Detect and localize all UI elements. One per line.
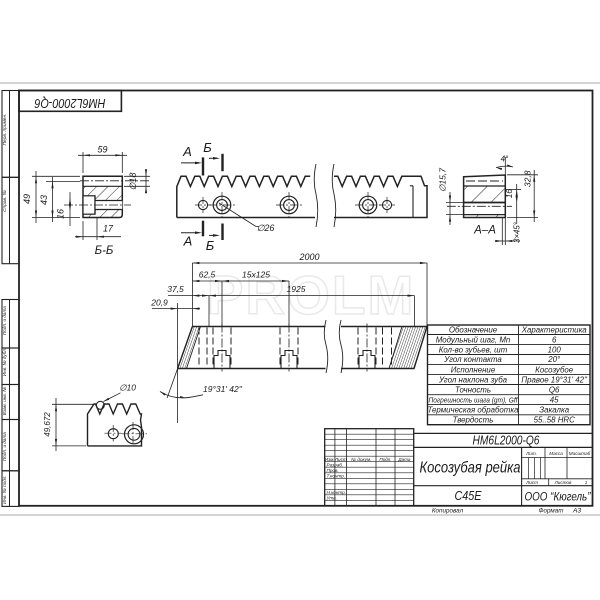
svg-text:∅18: ∅18 (128, 173, 138, 191)
svg-text:Погрешность шага (gm), Gff: Погрешность шага (gm), Gff (429, 395, 519, 404)
svg-text:Масштаб: Масштаб (569, 451, 591, 456)
svg-text:Листов: Листов (554, 480, 572, 485)
svg-text:55..58 HRC: 55..58 HRC (534, 416, 576, 425)
svg-text:Угол наклона зуба: Угол наклона зуба (438, 375, 508, 384)
svg-text:Кол-во зубьев, шт: Кол-во зубьев, шт (439, 345, 508, 354)
svg-text:Косозубая рейка: Косозубая рейка (420, 460, 521, 477)
svg-text:49: 49 (22, 194, 32, 204)
svg-text:37,5: 37,5 (167, 284, 184, 294)
svg-text:Твердость: Твердость (453, 416, 494, 425)
svg-text:Н.контр.: Н.контр. (327, 490, 346, 495)
svg-text:16: 16 (504, 189, 514, 199)
svg-text:1: 1 (585, 480, 588, 485)
svg-text:43: 43 (39, 195, 49, 205)
svg-text:15x125: 15x125 (242, 270, 270, 280)
svg-text:Формат: Формат (538, 508, 563, 515)
svg-text:HM6L2000-Q6: HM6L2000-Q6 (34, 96, 106, 111)
svg-text:C45E: C45E (455, 489, 483, 503)
svg-text:Подп. и дата: Подп. и дата (2, 432, 7, 461)
svg-text:20,9: 20,9 (150, 298, 168, 308)
svg-text:Перв. примен.: Перв. примен. (2, 114, 8, 146)
svg-text:Инв. № дубл.: Инв. № дубл. (2, 348, 7, 376)
svg-text:Исполнение: Исполнение (451, 365, 496, 374)
svg-text:Модульный шаг, Mn: Модульный шаг, Mn (436, 335, 511, 344)
svg-text:Q6: Q6 (549, 385, 560, 394)
svg-text:45: 45 (550, 395, 559, 404)
svg-text:49,672: 49,672 (43, 412, 52, 437)
svg-text:1925: 1925 (287, 284, 306, 294)
svg-text:Б: Б (206, 238, 215, 253)
svg-text:3×45°: 3×45° (513, 222, 522, 243)
svg-text:Взам. инв. №: Взам. инв. № (2, 387, 7, 415)
svg-text:59: 59 (97, 145, 107, 155)
svg-text:Т.контр.: Т.контр. (327, 473, 346, 478)
svg-text:Обозначение: Обозначение (449, 326, 498, 335)
svg-text:Лит.: Лит. (525, 451, 537, 456)
svg-text:Разраб.: Разраб. (327, 462, 344, 467)
svg-text:HM6L2000-Q6: HM6L2000-Q6 (473, 434, 540, 448)
svg-text:№ докум.: № докум. (351, 457, 371, 462)
svg-text:16: 16 (56, 209, 66, 219)
svg-text:∅10: ∅10 (119, 383, 136, 393)
svg-text:∅26: ∅26 (257, 223, 275, 233)
svg-text:ООО “Кюгель”: ООО “Кюгель” (525, 490, 592, 504)
svg-text:Угол контакта: Угол контакта (443, 355, 502, 364)
svg-text:Подп. и дата: Подп. и дата (2, 306, 7, 335)
svg-text:Лист: Лист (334, 457, 347, 462)
svg-text:Б: Б (203, 140, 212, 155)
svg-text:6: 6 (552, 335, 557, 344)
svg-text:∅15,7: ∅15,7 (438, 168, 448, 192)
svg-text:Утв.: Утв. (327, 495, 337, 500)
svg-text:62,5: 62,5 (199, 270, 216, 280)
svg-text:PROLM: PROLM (207, 264, 416, 326)
svg-text:Б-Б: Б-Б (95, 245, 114, 257)
svg-text:Лист: Лист (525, 480, 538, 485)
svg-text:Дата: Дата (397, 457, 411, 462)
svg-text:А–А: А–А (473, 225, 496, 237)
svg-text:19°31' 42'': 19°31' 42'' (203, 384, 242, 394)
svg-text:Точность: Точность (455, 385, 491, 394)
svg-text:20°: 20° (547, 355, 560, 364)
svg-text:17: 17 (103, 224, 114, 234)
svg-text:Термическая обработка: Термическая обработка (427, 406, 519, 415)
svg-text:32,8: 32,8 (523, 170, 533, 187)
svg-text:Характеристика: Характеристика (521, 326, 588, 335)
svg-text:Закалка: Закалка (539, 406, 569, 415)
svg-text:Пров.: Пров. (327, 468, 339, 473)
svg-text:2000: 2000 (298, 252, 319, 262)
svg-text:А3: А3 (572, 508, 582, 515)
svg-text:Изм.: Изм. (325, 457, 335, 462)
svg-text:А: А (183, 234, 193, 249)
svg-text:Инв. № подл.: Инв. № подл. (2, 475, 7, 504)
svg-text:4°: 4° (501, 155, 509, 164)
svg-text:Масса: Масса (549, 451, 563, 456)
svg-text:Правое 19°31' 42'': Правое 19°31' 42'' (521, 375, 587, 384)
svg-text:Справ. №: Справ. № (2, 190, 8, 212)
svg-text:100: 100 (548, 345, 562, 354)
svg-text:Косозубое: Косозубое (535, 365, 574, 374)
svg-text:А: А (182, 144, 192, 159)
svg-text:Копировал: Копировал (432, 508, 464, 515)
svg-text:Подп.: Подп. (379, 457, 391, 462)
